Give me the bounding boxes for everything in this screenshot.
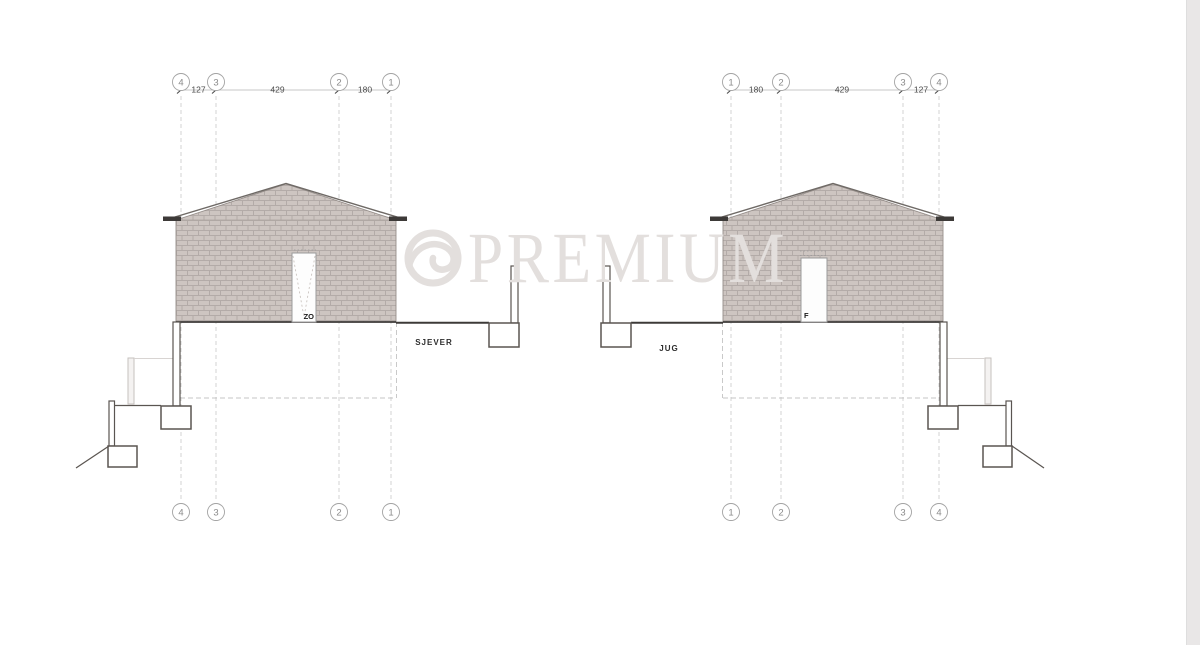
dimension-value: 127 — [191, 85, 205, 95]
grid-bubbles-bottom-north: 4 3 2 1 — [173, 504, 400, 521]
elevation-title: SJEVER — [415, 338, 453, 347]
grid-bubble-label: 1 — [728, 78, 733, 89]
window-zo: ZO — [292, 250, 316, 322]
footing — [108, 446, 137, 467]
grid-bubble-label: 4 — [936, 78, 941, 89]
hidden-post — [985, 358, 991, 404]
dimension-value: 180 — [358, 85, 372, 95]
grid-bubble-label: 2 — [336, 508, 341, 519]
footing — [928, 406, 958, 429]
north-elevation: 127 429 180 4 3 2 1 4 3 2 1 — [76, 74, 519, 521]
door-f: F — [800, 251, 828, 322]
grid-bubble-label: 2 — [336, 78, 341, 89]
footing — [161, 406, 191, 429]
grid-bubble-label: 3 — [900, 78, 905, 89]
grid-bubble-label: 1 — [388, 508, 393, 519]
dimension-value: 429 — [270, 85, 284, 95]
grid-bubble-label: 4 — [178, 78, 183, 89]
grid-bubble-label: 1 — [388, 78, 393, 89]
grid-bubble-label: 1 — [728, 508, 733, 519]
terrain-slope-line — [1012, 446, 1044, 468]
footing — [983, 446, 1012, 467]
elevation-title: JUG — [659, 344, 678, 353]
foundation-hidden-line-south — [723, 322, 941, 398]
stepped-foundation-north — [76, 322, 191, 468]
grid-bubble-label: 3 — [213, 78, 218, 89]
grid-bubble-label: 3 — [213, 508, 218, 519]
stepped-foundation-south — [928, 322, 1044, 468]
hidden-post — [128, 358, 134, 404]
dimension-value: 180 — [749, 85, 763, 95]
dimension-value: 127 — [914, 85, 928, 95]
foundation-post — [940, 322, 947, 406]
foundation-post — [173, 322, 180, 406]
door-label: F — [804, 311, 809, 320]
dimension-value: 429 — [835, 85, 849, 95]
grid-bubble-label: 4 — [178, 508, 183, 519]
foundation-post — [109, 401, 115, 446]
architectural-elevation-sheet: 127 429 180 4 3 2 1 4 3 2 1 — [0, 0, 1200, 645]
foundation-post — [1006, 401, 1012, 446]
grid-bubbles-bottom-south: 1 2 3 4 — [723, 504, 948, 521]
eave-bar-right — [389, 217, 407, 222]
watermark-logo-swoosh-icon — [409, 244, 454, 269]
scrollbar-track[interactable] — [1187, 0, 1200, 645]
window-label: ZO — [304, 312, 315, 321]
eave-bar-right — [936, 217, 954, 222]
watermark: PREMIUM — [408, 218, 788, 298]
pillar-footing — [601, 323, 631, 347]
terrain-slope-line — [76, 446, 109, 468]
foundation-hidden-line-north — [180, 322, 397, 398]
grid-bubble-label: 3 — [900, 508, 905, 519]
eave-bar-left — [163, 217, 181, 222]
grid-bubble-label: 2 — [778, 78, 783, 89]
elevation-drawing: 127 429 180 4 3 2 1 4 3 2 1 — [0, 0, 1200, 645]
house-wall-north — [176, 184, 396, 322]
grid-bubble-label: 2 — [778, 508, 783, 519]
watermark-brand-text: PREMIUM — [468, 218, 788, 298]
pillar-footing — [489, 323, 519, 347]
grid-bubble-label: 4 — [936, 508, 941, 519]
